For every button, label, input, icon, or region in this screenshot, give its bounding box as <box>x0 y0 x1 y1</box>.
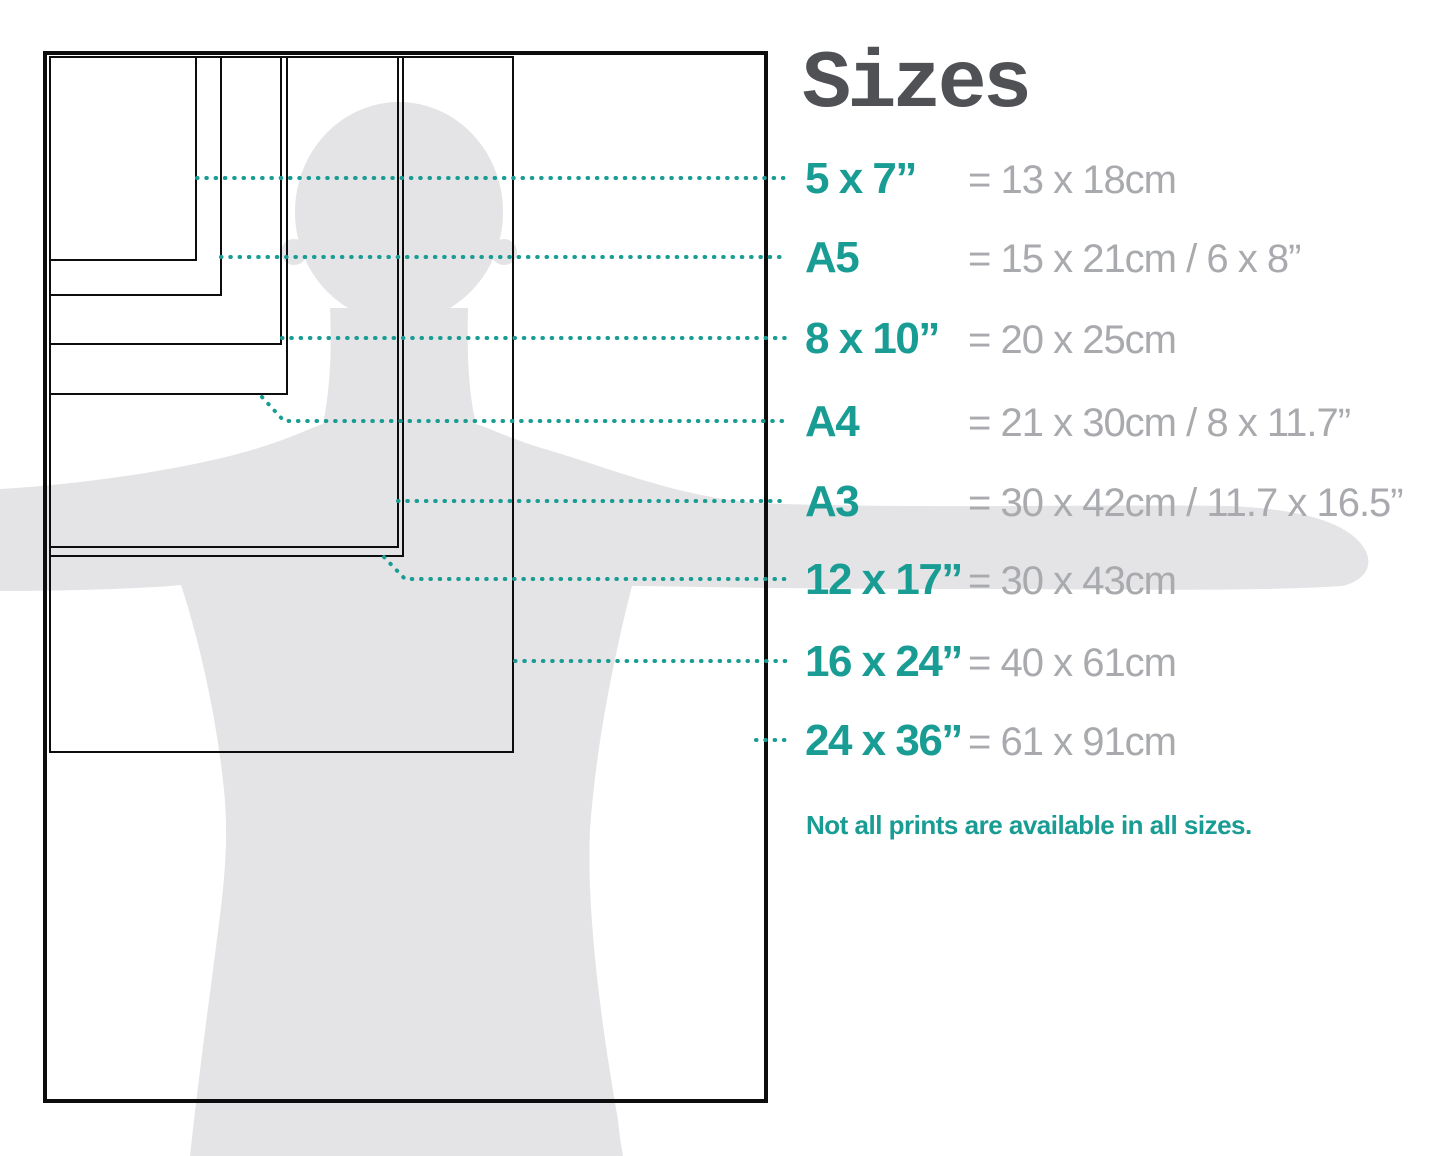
size-label-5x7: 5 x 7” <box>805 156 968 202</box>
size-label-8x10: 8 x 10” <box>805 316 968 362</box>
size-metric-a3: = 30 x 42cm / 11.7 x 16.5” <box>968 480 1403 526</box>
size-row-a4: A4= 21 x 30cm / 8 x 11.7” <box>805 399 1350 446</box>
size-row-8x10: 8 x 10”= 20 x 25cm <box>805 316 1176 363</box>
page-title: Sizes <box>802 44 1028 126</box>
size-diagram <box>0 0 1445 1156</box>
size-metric-a4: = 21 x 30cm / 8 x 11.7” <box>968 400 1350 446</box>
size-label-a4: A4 <box>805 399 968 445</box>
size-metric-12x17: = 30 x 43cm <box>968 558 1176 604</box>
size-row-a5: A5= 15 x 21cm / 6 x 8” <box>805 235 1300 282</box>
size-label-24x36: 24 x 36” <box>805 718 968 764</box>
size-row-16x24: 16 x 24”= 40 x 61cm <box>805 639 1176 686</box>
size-row-24x36: 24 x 36”= 61 x 91cm <box>805 718 1176 765</box>
size-metric-5x7: = 13 x 18cm <box>968 157 1176 203</box>
size-label-a3: A3 <box>805 479 968 525</box>
size-metric-8x10: = 20 x 25cm <box>968 317 1176 363</box>
size-guide-infographic: Sizes 5 x 7”= 13 x 18cmA5= 15 x 21cm / 6… <box>0 0 1445 1156</box>
size-metric-24x36: = 61 x 91cm <box>968 719 1176 765</box>
size-row-12x17: 12 x 17”= 30 x 43cm <box>805 557 1176 604</box>
size-label-a5: A5 <box>805 235 968 281</box>
size-label-12x17: 12 x 17” <box>805 557 968 603</box>
size-row-5x7: 5 x 7”= 13 x 18cm <box>805 156 1176 203</box>
size-metric-16x24: = 40 x 61cm <box>968 640 1176 686</box>
size-box-8x10 <box>50 57 281 344</box>
size-row-a3: A3= 30 x 42cm / 11.7 x 16.5” <box>805 479 1403 526</box>
availability-note: Not all prints are available in all size… <box>806 810 1252 841</box>
size-metric-a5: = 15 x 21cm / 6 x 8” <box>968 236 1300 282</box>
size-label-16x24: 16 x 24” <box>805 639 968 685</box>
size-box-5x7 <box>50 57 196 260</box>
